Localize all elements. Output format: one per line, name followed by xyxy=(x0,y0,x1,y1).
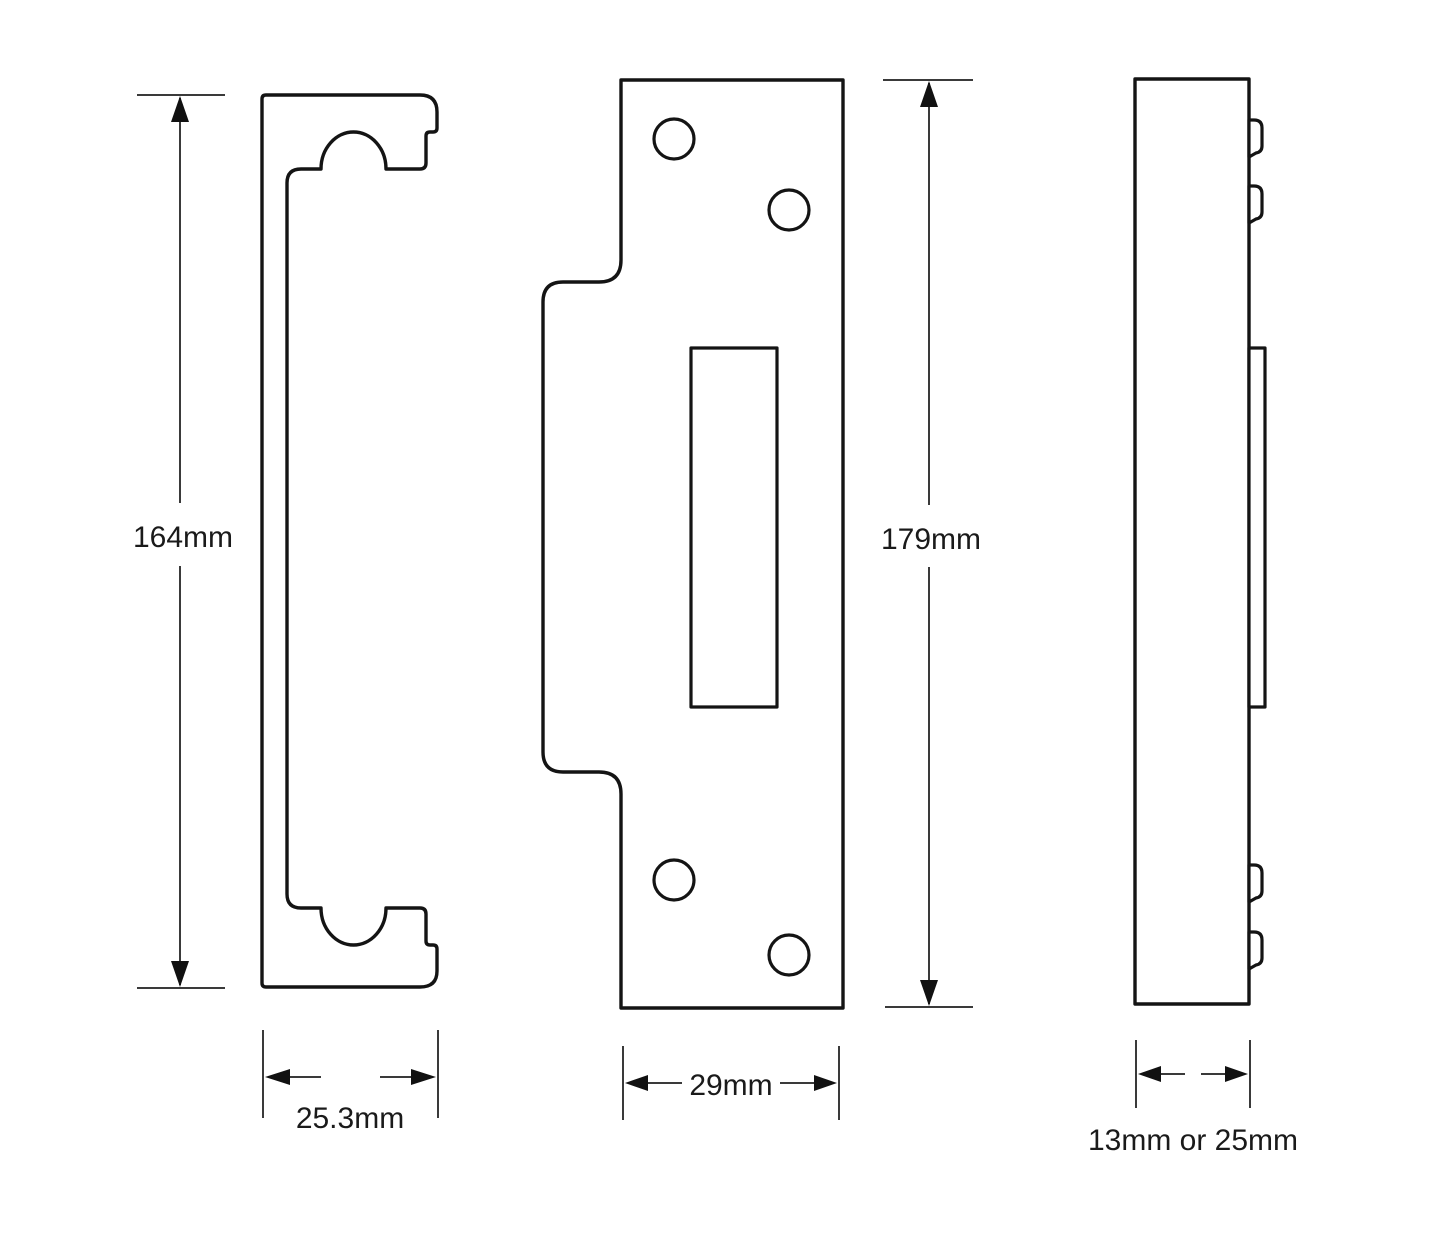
dimension-label: 13mm or 25mm xyxy=(1088,1124,1298,1157)
screw-hole-top-right xyxy=(769,190,809,230)
arrowhead-down xyxy=(920,980,938,1006)
technical-drawing-page: 164mm 25.3mm 179mm 29mm xyxy=(0,0,1445,1234)
dimension-label: 25.3mm xyxy=(296,1102,404,1135)
screw-lug-1 xyxy=(1249,120,1262,157)
arrowhead-right xyxy=(814,1075,837,1091)
screw-lug-2 xyxy=(1249,186,1262,223)
screw-hole-top-left xyxy=(654,119,694,159)
arrowhead-left xyxy=(625,1075,648,1091)
dimension-left-height: 164mm xyxy=(133,95,233,988)
dimension-front-width: 29mm xyxy=(623,1046,839,1120)
side-body xyxy=(1135,79,1249,1004)
arrowhead-left xyxy=(1138,1066,1161,1082)
screw-lug-4 xyxy=(1249,932,1262,969)
arrowhead-left xyxy=(265,1069,290,1085)
slot-boss xyxy=(1249,348,1265,707)
screw-lug-3 xyxy=(1249,865,1262,902)
screw-hole-bottom-right xyxy=(769,935,809,975)
arrowhead-right xyxy=(411,1069,436,1085)
arrowhead-right xyxy=(1225,1066,1248,1082)
dimension-label: 29mm xyxy=(689,1069,772,1102)
dimension-label: 164mm xyxy=(133,521,233,554)
screw-hole-bottom-left xyxy=(654,860,694,900)
arrowhead-up xyxy=(171,96,189,122)
side-view xyxy=(1135,79,1265,1004)
arrowhead-up xyxy=(920,81,938,107)
left-profile-view xyxy=(262,95,437,987)
front-view xyxy=(543,80,843,1008)
dimension-front-height: 179mm xyxy=(881,80,981,1007)
latch-slot xyxy=(691,348,777,707)
arrowhead-down xyxy=(171,961,189,987)
dimension-side-thickness: 13mm or 25mm xyxy=(1088,1040,1298,1157)
rebate-profile-outline xyxy=(262,95,437,987)
dimension-left-width: 25.3mm xyxy=(263,1030,438,1135)
drawing-canvas: 164mm 25.3mm 179mm 29mm xyxy=(0,0,1445,1234)
dimension-label: 179mm xyxy=(881,523,981,556)
